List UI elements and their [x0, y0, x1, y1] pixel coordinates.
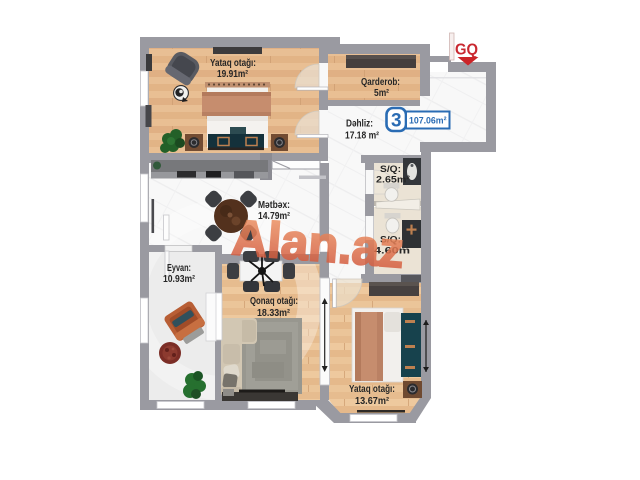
svg-text:Yataq otağı:: Yataq otağı: [210, 58, 256, 69]
svg-text:Yataq otağı:: Yataq otağı: [349, 384, 395, 395]
svg-text:Dəhliz:: Dəhliz: [346, 119, 373, 130]
svg-text:10.93m²: 10.93m² [163, 274, 196, 285]
svg-text:Qonaq otağı:: Qonaq otağı: [250, 296, 298, 307]
svg-text:S/Q:: S/Q: [380, 164, 401, 175]
svg-text:3: 3 [391, 111, 402, 132]
svg-text:19.91m²: 19.91m² [217, 69, 249, 80]
svg-text:Eyvan:: Eyvan: [167, 263, 191, 274]
svg-text:17.18 m²: 17.18 m² [345, 131, 380, 142]
svg-text:5m²: 5m² [374, 88, 390, 99]
svg-text:GQ: GQ [455, 42, 478, 59]
svg-text:107.06m²: 107.06m² [409, 116, 447, 127]
svg-text:13.67m²: 13.67m² [355, 396, 390, 407]
svg-text:2.65m²: 2.65m² [376, 175, 410, 186]
svg-text:18.33m²: 18.33m² [257, 308, 291, 319]
svg-text:Qarderob:: Qarderob: [361, 77, 400, 88]
svg-text:Mətbəx:: Mətbəx: [258, 200, 290, 211]
